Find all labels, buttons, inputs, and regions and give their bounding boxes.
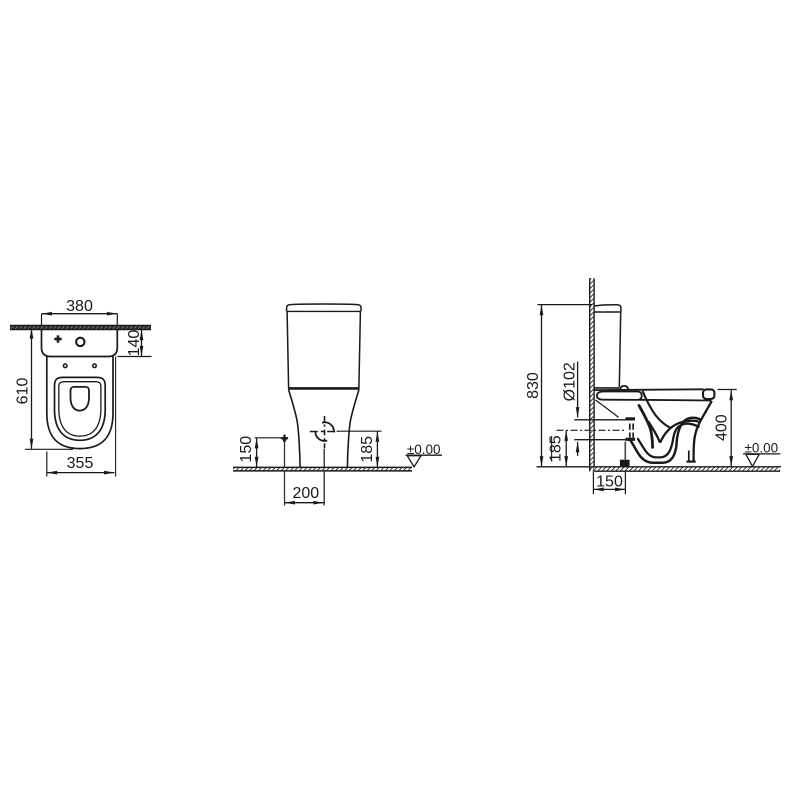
svg-text:200: 200 <box>292 485 319 502</box>
svg-text:Ø102: Ø102 <box>561 362 578 401</box>
svg-text:185: 185 <box>359 436 376 463</box>
svg-text:150: 150 <box>596 474 623 491</box>
svg-text:185: 185 <box>548 435 565 462</box>
svg-text:610: 610 <box>15 378 32 405</box>
svg-text:140: 140 <box>126 330 143 357</box>
svg-text:380: 380 <box>66 298 93 315</box>
svg-text:±0.00: ±0.00 <box>407 442 441 457</box>
svg-text:150: 150 <box>238 436 255 463</box>
svg-text:830: 830 <box>525 372 542 399</box>
svg-text:355: 355 <box>67 455 94 472</box>
svg-text:400: 400 <box>714 414 731 441</box>
